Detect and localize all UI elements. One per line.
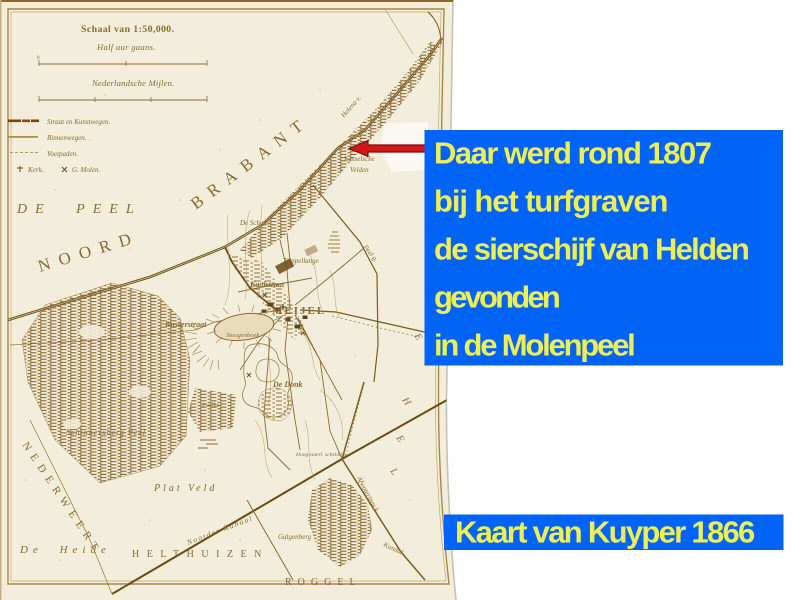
svg-text:Daar werd rond 1807: Daar werd rond 1807 <box>434 136 711 171</box>
svg-text:Stoogenboek: Stoogenboek <box>226 332 259 339</box>
svg-text:Galgenberg: Galgenberg <box>278 533 312 541</box>
svg-text:Peelke: Peelke <box>201 402 219 409</box>
svg-text:Velden: Velden <box>350 166 369 174</box>
svg-text:Straat en Kunstwegen.: Straat en Kunstwegen. <box>47 118 110 126</box>
svg-text:Kaart van Kuyper 1866: Kaart van Kuyper 1866 <box>455 515 755 550</box>
svg-text:de sierschijf van Helden: de sierschijf van Helden <box>434 232 749 267</box>
svg-text:HELTHUIZEN: HELTHUIZEN <box>132 549 269 560</box>
svg-text:in de Molenpeel: in de Molenpeel <box>434 328 634 363</box>
svg-text:Kaalstraat: Kaalstraat <box>249 280 285 289</box>
svg-text:Binnenwegen.: Binnenwegen. <box>47 134 87 142</box>
svg-text:Nederlandsche Mijlen.: Nederlandsche Mijlen. <box>91 78 174 88</box>
svg-text:bij het turfgraven: bij het turfgraven <box>434 184 668 219</box>
svg-text:Plat Veld: Plat Veld <box>153 483 217 494</box>
svg-text:De Schans: De Schans <box>239 219 270 227</box>
svg-text:Kesselsche: Kesselsche <box>343 155 375 163</box>
svg-text:G. Molen.: G. Molen. <box>72 166 100 174</box>
svg-text:Half uur gaans.: Half uur gaans. <box>96 42 156 52</box>
svg-text:DE PEEL: DE PEEL <box>16 202 142 217</box>
svg-text:De Heide: De Heide <box>19 544 111 556</box>
svg-text:Voetpaden.: Voetpaden. <box>47 150 78 158</box>
svg-text:Schaal van 1:50,000.: Schaal van 1:50,000. <box>81 24 175 35</box>
svg-text:MEIJEL: MEIJEL <box>272 305 326 317</box>
svg-text:ROGGEL: ROGGEL <box>285 577 362 588</box>
svg-text:Kerk.: Kerk. <box>27 166 44 174</box>
svg-text:De Donk: De Donk <box>272 380 303 389</box>
svg-text:Schinnersberg Peel: Schinnersberg Peel <box>66 428 146 437</box>
svg-text:gevonden: gevonden <box>434 280 560 315</box>
svg-text:Hoogwaterl. scheiding: Hoogwaterl. scheiding <box>295 452 346 458</box>
